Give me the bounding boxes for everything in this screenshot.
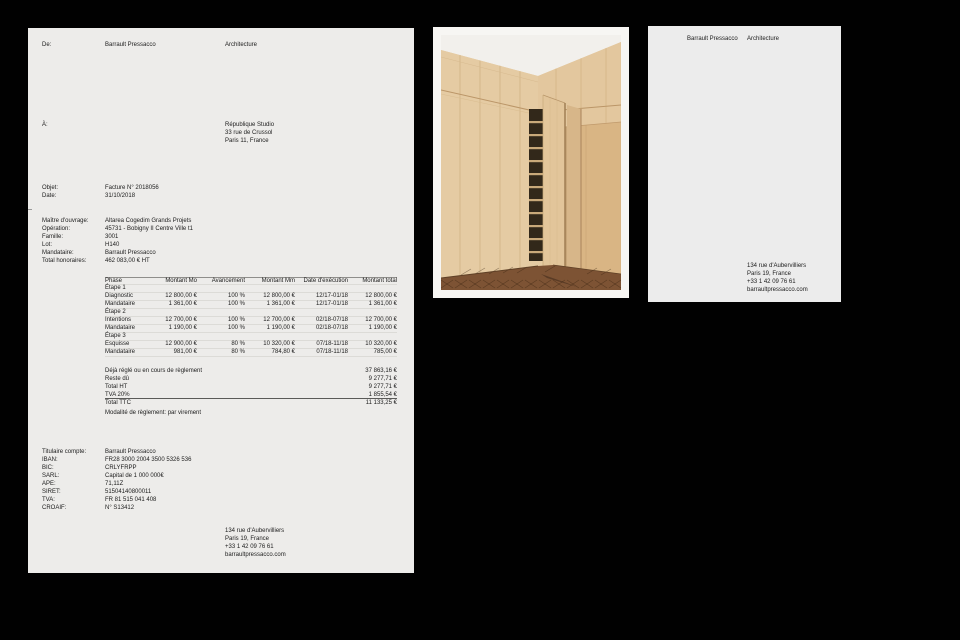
to-address: République Studio 33 rue de Crussol Pari… [225, 121, 274, 145]
letterhead-address-line: 134 rue d'Aubervilliers [747, 262, 808, 270]
total-label: Reste dû [105, 375, 129, 383]
invoice-page: De: Barrault Pressacco Architecture À: R… [28, 28, 414, 573]
wardrobe-photo [441, 35, 621, 290]
cell-date: 12/17-01/18 [295, 301, 348, 309]
project-row: Maître d'ouvrage:Altarea Cogedim Grands … [42, 217, 404, 225]
footer-address-line: barraultpressacco.com [225, 551, 286, 559]
fee-table-header: Phase Montant Mo Avancement Montant Mm D… [105, 277, 397, 285]
cell-mm: 10 320,00 € [245, 341, 295, 349]
total-label: Déjà réglé ou en cours de règlement [105, 367, 202, 375]
bank-value: Barrault Pressacco [105, 449, 156, 455]
project-row: Mandataire:Barrault Pressacco [42, 249, 404, 257]
bank-label: SIRET: [42, 488, 105, 496]
total-row: Total HT9 277,71 € [105, 383, 397, 391]
bank-value: 71,11Z [105, 481, 123, 487]
bank-label: IBAN: [42, 456, 105, 464]
project-label: Lot: [42, 241, 105, 249]
payment-note: Modalité de règlement: par virement [105, 409, 397, 417]
total-row: Déjà réglé ou en cours de règlement37 86… [105, 367, 397, 375]
table-section-row: Étape 3 [105, 333, 397, 341]
project-label: Total honoraires: [42, 257, 105, 265]
total-value: 9 277,71 € [369, 383, 397, 391]
from-dept: Architecture [225, 41, 257, 49]
letterhead-address-line: barraultpressacco.com [747, 286, 808, 294]
cell-date [295, 333, 348, 341]
cell-av: 100 % [197, 301, 245, 309]
cell-date [295, 309, 348, 317]
cell-mo: 1 361,00 € [155, 301, 197, 309]
cell-mm [245, 285, 295, 293]
totals-block: Déjà réglé ou en cours de règlement37 86… [105, 367, 397, 417]
meta-block: Objet:Facture N° 2018056 Date:31/10/2018 [42, 184, 404, 200]
project-block: Maître d'ouvrage:Altarea Cogedim Grands … [42, 217, 404, 265]
photo-open-door [543, 95, 565, 284]
photo-return-panel [567, 105, 581, 286]
to-address-line: Paris 11, France [225, 137, 274, 145]
meta-row: Objet:Facture N° 2018056 [42, 184, 404, 192]
project-label: Mandataire: [42, 249, 105, 257]
total-row-ttc: Total TTC11 133,25 € [105, 399, 397, 407]
cell-mo [155, 309, 197, 317]
letterhead-address-line: +33 1 42 09 76 61 [747, 278, 808, 286]
to-label: À: [42, 121, 48, 129]
bank-row: TVA:FR 81 515 041 408 [42, 496, 404, 504]
project-value: 45731 - Bobigny II Centre Ville t1 [105, 226, 193, 232]
table-row: Mandataire981,00 €80 %784,80 €07/18-11/1… [105, 349, 397, 357]
cell-mm: 1 361,00 € [245, 301, 295, 309]
cell-total: 12 700,00 € [348, 317, 397, 325]
table-row: Intentions12 700,00 €100 %12 700,00 €02/… [105, 317, 397, 325]
letterhead-name: Barrault Pressacco [687, 35, 738, 43]
bank-value: FR 81 515 041 408 [105, 497, 156, 503]
cell-date: 02/18-07/18 [295, 325, 348, 333]
cell-mo: 1 190,00 € [155, 325, 197, 333]
to-address-line: République Studio [225, 121, 274, 129]
table-section-row: Étape 1 [105, 285, 397, 293]
total-label: Total TTC [105, 399, 131, 407]
total-value: 1 855,54 € [369, 391, 397, 398]
from-label: De: [42, 41, 51, 49]
bank-value: FR28 3000 2004 3500 5326 536 [105, 457, 191, 463]
project-value: Barrault Pressacco [105, 250, 156, 256]
bank-block: Titulaire compte:Barrault Pressacco IBAN… [42, 448, 404, 512]
cell-mm [245, 333, 295, 341]
cell-av: 100 % [197, 293, 245, 301]
total-row: TVA 20%1 855,54 € [105, 391, 397, 399]
cell-total: 1 361,00 € [348, 301, 397, 309]
footer-address-line: Paris 19, France [225, 535, 286, 543]
table-row: Mandataire1 190,00 €100 %1 190,00 €02/18… [105, 325, 397, 333]
total-row: Reste dû9 277,71 € [105, 375, 397, 383]
cell-total: 10 320,00 € [348, 341, 397, 349]
bank-row: SARL:Capital de 1 000 000€ [42, 472, 404, 480]
cell-total: 785,00 € [348, 349, 397, 357]
letterhead-address: 134 rue d'Aubervilliers Paris 19, France… [747, 262, 808, 294]
cell-date: 07/18-11/18 [295, 341, 348, 349]
cell-av: 100 % [197, 317, 245, 325]
cell-mm: 1 190,00 € [245, 325, 295, 333]
cell-date: 12/17-01/18 [295, 293, 348, 301]
cell-total [348, 309, 397, 317]
bank-value: 51504140800011 [105, 489, 151, 495]
bank-label: CROAIF: [42, 504, 105, 512]
bank-row: Titulaire compte:Barrault Pressacco [42, 448, 404, 456]
cell-total: 1 190,00 € [348, 325, 397, 333]
total-value: 9 277,71 € [369, 375, 397, 383]
cell-av [197, 333, 245, 341]
bank-label: TVA: [42, 496, 105, 504]
table-section-row: Étape 2 [105, 309, 397, 317]
project-value: 3001 [105, 234, 118, 240]
cell-date: 07/18-11/18 [295, 349, 348, 357]
meta-value: Facture N° 2018056 [105, 185, 159, 191]
bank-value: CRLYFRPP [105, 465, 137, 471]
cell-av [197, 309, 245, 317]
photo-panel [433, 27, 629, 298]
bank-row: APE:71,11Z [42, 480, 404, 488]
cell-date [295, 285, 348, 293]
cell-mo: 12 700,00 € [155, 317, 197, 325]
cell-phase: Intentions [105, 317, 155, 325]
meta-row: Date:31/10/2018 [42, 192, 404, 200]
bank-label: Titulaire compte: [42, 448, 105, 456]
table-row: Mandataire1 361,00 €100 %1 361,00 €12/17… [105, 301, 397, 309]
cell-total [348, 285, 397, 293]
letterhead-page: Barrault Pressacco Architecture 134 rue … [648, 26, 841, 302]
cell-mo: 12 900,00 € [155, 341, 197, 349]
bank-label: BIC: [42, 464, 105, 472]
total-label: Total HT [105, 383, 127, 391]
cell-mo: 981,00 € [155, 349, 197, 357]
total-value: 11 133,25 € [366, 399, 397, 407]
cell-total [348, 333, 397, 341]
cell-phase: Mandataire [105, 349, 155, 357]
project-row: Famille:3001 [42, 233, 404, 241]
table-row: Diagnostic12 800,00 €100 %12 800,00 €12/… [105, 293, 397, 301]
cell-phase: Mandataire [105, 325, 155, 333]
cell-mm: 12 700,00 € [245, 317, 295, 325]
cell-av [197, 285, 245, 293]
project-row: Opération:45731 - Bobigny II Centre Vill… [42, 225, 404, 233]
total-label: TVA 20% [105, 391, 130, 398]
cell-phase: Mandataire [105, 301, 155, 309]
project-value: H140 [105, 242, 119, 248]
cell-mm [245, 309, 295, 317]
bank-label: APE: [42, 480, 105, 488]
bank-label: SARL: [42, 472, 105, 480]
cell-phase: Étape 1 [105, 285, 155, 293]
bank-row: SIRET:51504140800011 [42, 488, 404, 496]
cell-phase: Étape 2 [105, 309, 155, 317]
total-value: 37 863,16 € [365, 367, 397, 375]
project-row: Total honoraires:462 083,00 € HT [42, 257, 404, 265]
project-value: 462 083,00 € HT [105, 258, 150, 264]
project-label: Maître d'ouvrage: [42, 217, 105, 225]
cell-mo: 12 800,00 € [155, 293, 197, 301]
letterhead-address-line: Paris 19, France [747, 270, 808, 278]
bank-row: CROAIF:N° S13412 [42, 504, 404, 512]
cell-total: 12 800,00 € [348, 293, 397, 301]
cell-av: 80 % [197, 341, 245, 349]
project-row: Lot:H140 [42, 241, 404, 249]
footer-address-line: 134 rue d'Aubervilliers [225, 527, 286, 535]
bank-value: N° S13412 [105, 505, 134, 511]
meta-label: Objet: [42, 184, 105, 192]
bank-value: Capital de 1 000 000€ [105, 473, 164, 479]
cell-mm: 784,80 € [245, 349, 295, 357]
cell-mo [155, 333, 197, 341]
footer-address-line: +33 1 42 09 76 61 [225, 543, 286, 551]
cell-phase: Étape 3 [105, 333, 155, 341]
cell-av: 80 % [197, 349, 245, 357]
footer-address: 134 rue d'Aubervilliers Paris 19, France… [225, 527, 286, 559]
cell-av: 100 % [197, 325, 245, 333]
table-row: Esquisse12 900,00 €80 %10 320,00 €07/18-… [105, 341, 397, 349]
meta-label: Date: [42, 192, 105, 200]
cell-date: 02/18-07/18 [295, 317, 348, 325]
bank-row: BIC:CRLYFRPP [42, 464, 404, 472]
bank-row: IBAN:FR28 3000 2004 3500 5326 536 [42, 456, 404, 464]
to-address-line: 33 rue de Crussol [225, 129, 274, 137]
letterhead-dept: Architecture [747, 35, 779, 43]
cell-mm: 12 800,00 € [245, 293, 295, 301]
project-value: Altarea Cogedim Grands Projets [105, 218, 191, 224]
cell-mo [155, 285, 197, 293]
project-label: Famille: [42, 233, 105, 241]
cell-phase: Esquisse [105, 341, 155, 349]
photo-left-wall [441, 50, 538, 278]
fee-table: Phase Montant Mo Avancement Montant Mm D… [105, 277, 397, 357]
fold-mark [28, 209, 32, 210]
from-name: Barrault Pressacco [105, 41, 156, 49]
cell-phase: Diagnostic [105, 293, 155, 301]
meta-value: 31/10/2018 [105, 193, 135, 199]
project-label: Opération: [42, 225, 105, 233]
